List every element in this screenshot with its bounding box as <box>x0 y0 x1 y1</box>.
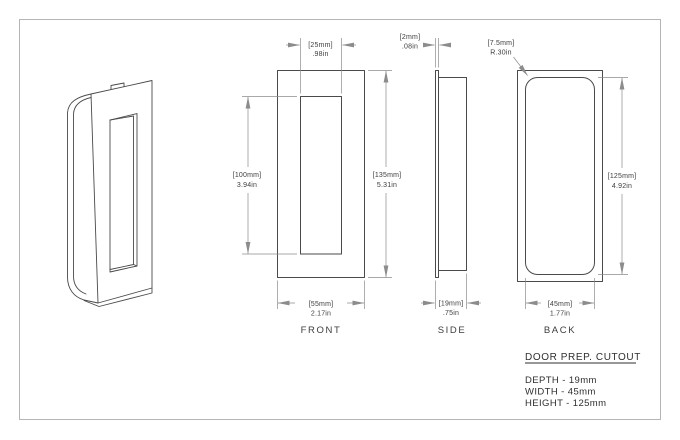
dim-side-depth: [19mm] .75in <box>421 274 481 318</box>
dim-text-in: R.30in <box>490 50 511 57</box>
front-view-label: FRONT <box>301 325 342 336</box>
leader-line <box>514 57 528 76</box>
dim-text-mm: [125mm] <box>608 173 637 180</box>
dim-text-in: 1.77in <box>550 311 570 318</box>
dim-text-mm: [100mm] <box>233 172 262 179</box>
dim-text-mm: [45mm] <box>548 301 573 308</box>
dim-text-in: .75in <box>443 310 459 317</box>
dim-text-in: 4.92in <box>612 183 632 190</box>
side-view: [2mm] .08in [19mm] .75in SIDE <box>400 34 481 336</box>
dim-back-height: [125mm] 4.92in <box>598 78 636 275</box>
notes-depth: DEPTH - 19mm <box>525 375 597 386</box>
dim-front-recess-height: [100mm] 3.94in <box>233 97 297 255</box>
dim-side-flange: [2mm] .08in <box>400 34 451 68</box>
iso-recess-sill <box>134 265 138 267</box>
dim-text-in: 2.17in <box>311 311 331 318</box>
dim-front-recess-width: [25mm] .98in <box>286 38 356 94</box>
back-outer-outline <box>518 71 603 282</box>
drawing-canvas: [25mm] .98in [100mm] 3.94in [135mm] 5.31… <box>0 0 680 440</box>
dim-text-in: 5.31in <box>377 182 397 189</box>
dim-text-mm: [135mm] <box>373 172 402 179</box>
iso-recess-opening <box>110 114 137 273</box>
dim-front-width: [55mm] 2.17in <box>278 281 365 318</box>
iso-body-silhouette <box>68 94 99 303</box>
back-body-outline <box>526 78 595 275</box>
notes-height: HEIGHT - 125mm <box>525 398 606 409</box>
dim-text-in: .98in <box>312 51 328 58</box>
dim-text-mm: [2mm] <box>400 34 420 41</box>
dim-text-mm: [25mm] <box>308 42 333 49</box>
back-view-label: BACK <box>544 325 576 336</box>
notes-title: DOOR PREP. CUTOUT <box>525 352 641 363</box>
iso-top-tab <box>111 83 124 90</box>
isometric-view <box>68 81 153 307</box>
door-prep-notes: DOOR PREP. CUTOUT DEPTH - 19mm WIDTH - 4… <box>525 352 641 409</box>
dim-text-in: 3.94in <box>237 182 257 189</box>
front-outer-outline <box>278 71 365 278</box>
dim-front-height: [135mm] 5.31in <box>368 71 401 278</box>
back-view: [7.5mm] R.30in [125mm] 4.92in [45mm] 1.7… <box>488 40 637 336</box>
drawing-sheet: [25mm] .98in [100mm] 3.94in [135mm] 5.31… <box>0 0 680 440</box>
dim-text-mm: [19mm] <box>439 301 464 308</box>
dim-text-mm: [7.5mm] <box>488 40 515 47</box>
dim-text-in: .08in <box>402 44 418 51</box>
iso-body-edge <box>74 98 92 295</box>
side-body-outline <box>439 78 467 271</box>
dim-text-mm: [55mm] <box>309 301 334 308</box>
front-view: [25mm] .98in [100mm] 3.94in [135mm] 5.31… <box>233 38 402 336</box>
iso-recess-back-edge <box>110 116 134 270</box>
dim-back-width: [45mm] 1.77in <box>526 278 595 318</box>
notes-width: WIDTH - 45mm <box>525 387 596 398</box>
front-recess-outline <box>301 97 342 255</box>
side-view-label: SIDE <box>438 325 467 336</box>
